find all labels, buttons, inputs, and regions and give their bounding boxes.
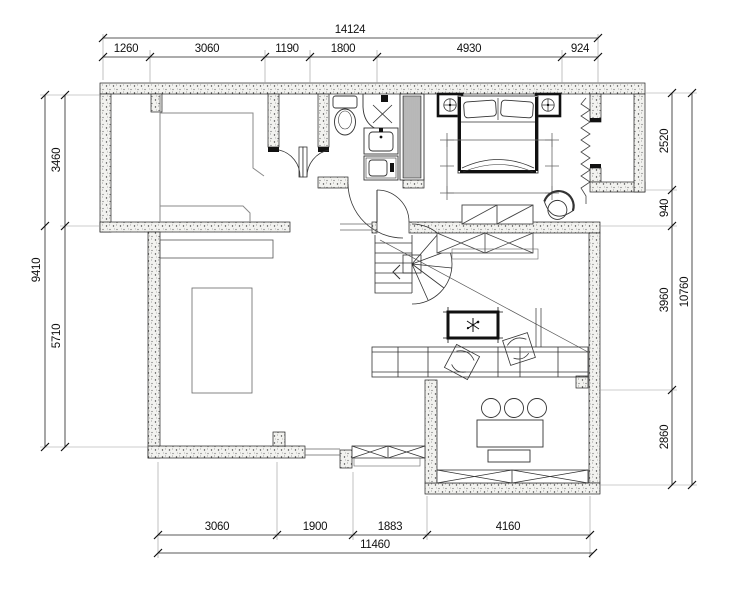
dim-left-overall: 9410 (31, 258, 43, 282)
dim-bottom-overall: 11460 (360, 539, 390, 551)
wall-bathroom-left (318, 94, 329, 147)
wall-left-upper (100, 94, 111, 232)
dim-top-seg-2: 1190 (275, 43, 299, 55)
wall-dining-stub (576, 376, 588, 388)
dim-top-seg-1: 3060 (195, 43, 219, 55)
stair-direction-arrow (393, 265, 400, 279)
dim-top-seg-3: 1800 (331, 43, 355, 55)
upper-left-room-lines (160, 95, 264, 222)
wall-bay-stub-upper (590, 94, 601, 122)
louver-closet (400, 94, 424, 180)
living-room (160, 240, 273, 393)
dim-right-seg-1: 940 (659, 199, 671, 217)
window-dining-south (437, 470, 588, 483)
dim-top-seg-4: 4930 (457, 43, 481, 55)
dim-right-seg-0: 2520 (659, 129, 671, 153)
desk-counter (372, 347, 588, 377)
dim-bottom-seg-0: 3060 (205, 521, 229, 533)
dining-stool-2 (505, 399, 524, 418)
wall-living-bottom (148, 446, 305, 458)
dining-stool-1 (482, 399, 501, 418)
dining-side-unit (488, 450, 530, 462)
landing-cabinet (437, 233, 538, 259)
wall-bathroom-bottom-left (318, 177, 348, 188)
dining-room (477, 399, 547, 463)
bed (458, 96, 538, 173)
dim-left-seg-0: 3460 (51, 148, 63, 172)
door-bedroom (377, 190, 409, 222)
sideboard (160, 240, 273, 258)
wall-bay-stub-lower (590, 168, 601, 182)
dining-table (477, 420, 543, 447)
nightstand-right (536, 94, 560, 116)
desk-chair-1 (444, 344, 479, 379)
curtain-zigzag (581, 98, 590, 204)
wall-top (100, 83, 645, 94)
desk-chair-2 (503, 333, 536, 366)
dim-right-seg-3: 2860 (659, 425, 671, 449)
windows (305, 224, 588, 483)
dim-left-seg-1: 5710 (51, 324, 63, 348)
window-living-south (352, 446, 425, 466)
bedroom (438, 94, 590, 224)
wall-pillar-stub (273, 432, 285, 446)
wall-living-left (148, 232, 160, 458)
wall-dining-left (425, 380, 437, 483)
floor-plan-drawing (0, 0, 740, 592)
dim-top-seg-5: 924 (571, 43, 589, 55)
black-table (443, 307, 503, 343)
washing-machine (364, 156, 398, 180)
dim-bottom-seg-1: 1900 (303, 521, 327, 533)
dim-bottom-seg-3: 4160 (496, 521, 520, 533)
floor-plan-page: 14124 1260 3060 1190 1800 4930 924 9410 … (0, 0, 740, 592)
wall-pier-south (340, 450, 352, 468)
dim-top-overall: 14124 (335, 24, 365, 36)
dim-bottom-seg-2: 1883 (378, 521, 402, 533)
bed-bench (462, 205, 533, 224)
wall-hall-left (268, 94, 279, 147)
wall-upperleft-room-bottom (100, 222, 290, 232)
bathroom (333, 94, 424, 180)
living-rug (192, 288, 252, 393)
toilet (333, 96, 357, 135)
wall-dining-bottom (425, 483, 600, 494)
dim-right-overall: 10760 (679, 277, 691, 307)
dining-stool-3 (528, 399, 547, 418)
dim-top-seg-0: 1260 (114, 43, 138, 55)
wall-bay-right (634, 94, 645, 192)
wall-right-main (589, 233, 600, 483)
sink-vanity (364, 128, 398, 154)
threshold-living-opening (305, 449, 340, 455)
shower (363, 94, 398, 132)
dim-right-seg-2: 3960 (659, 288, 671, 312)
